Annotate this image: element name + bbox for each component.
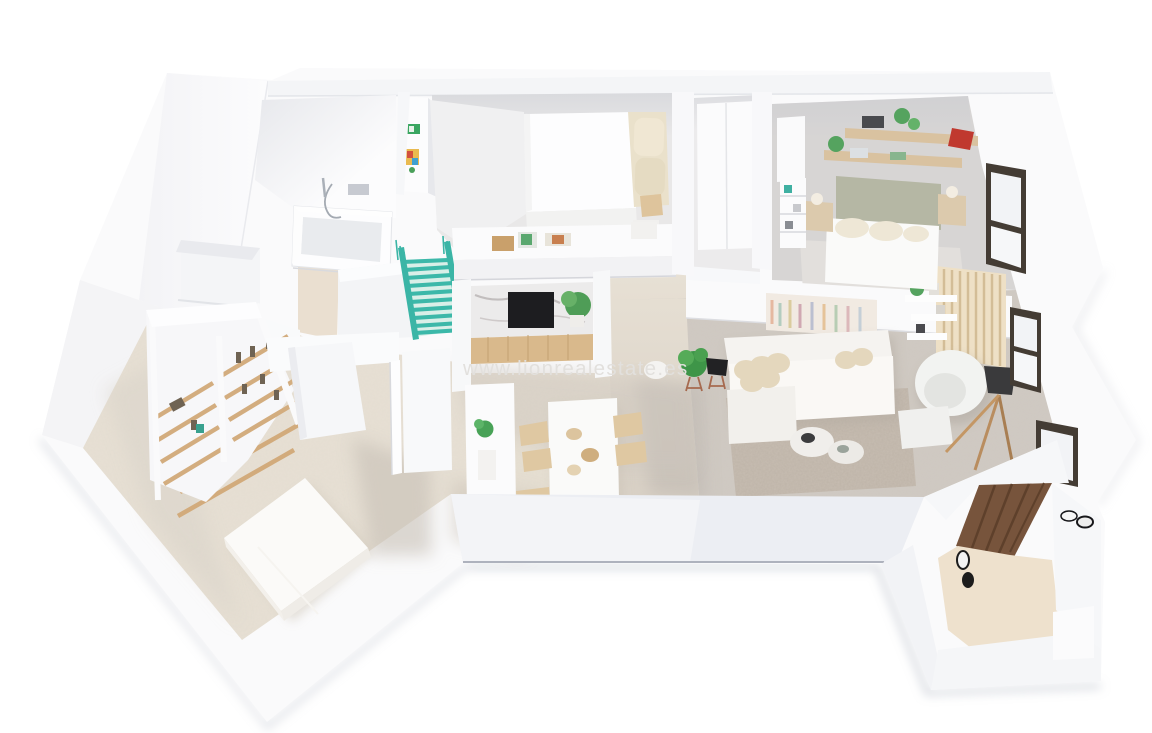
svg-text:www.lionrealestate.es: www.lionrealestate.es	[462, 357, 689, 380]
